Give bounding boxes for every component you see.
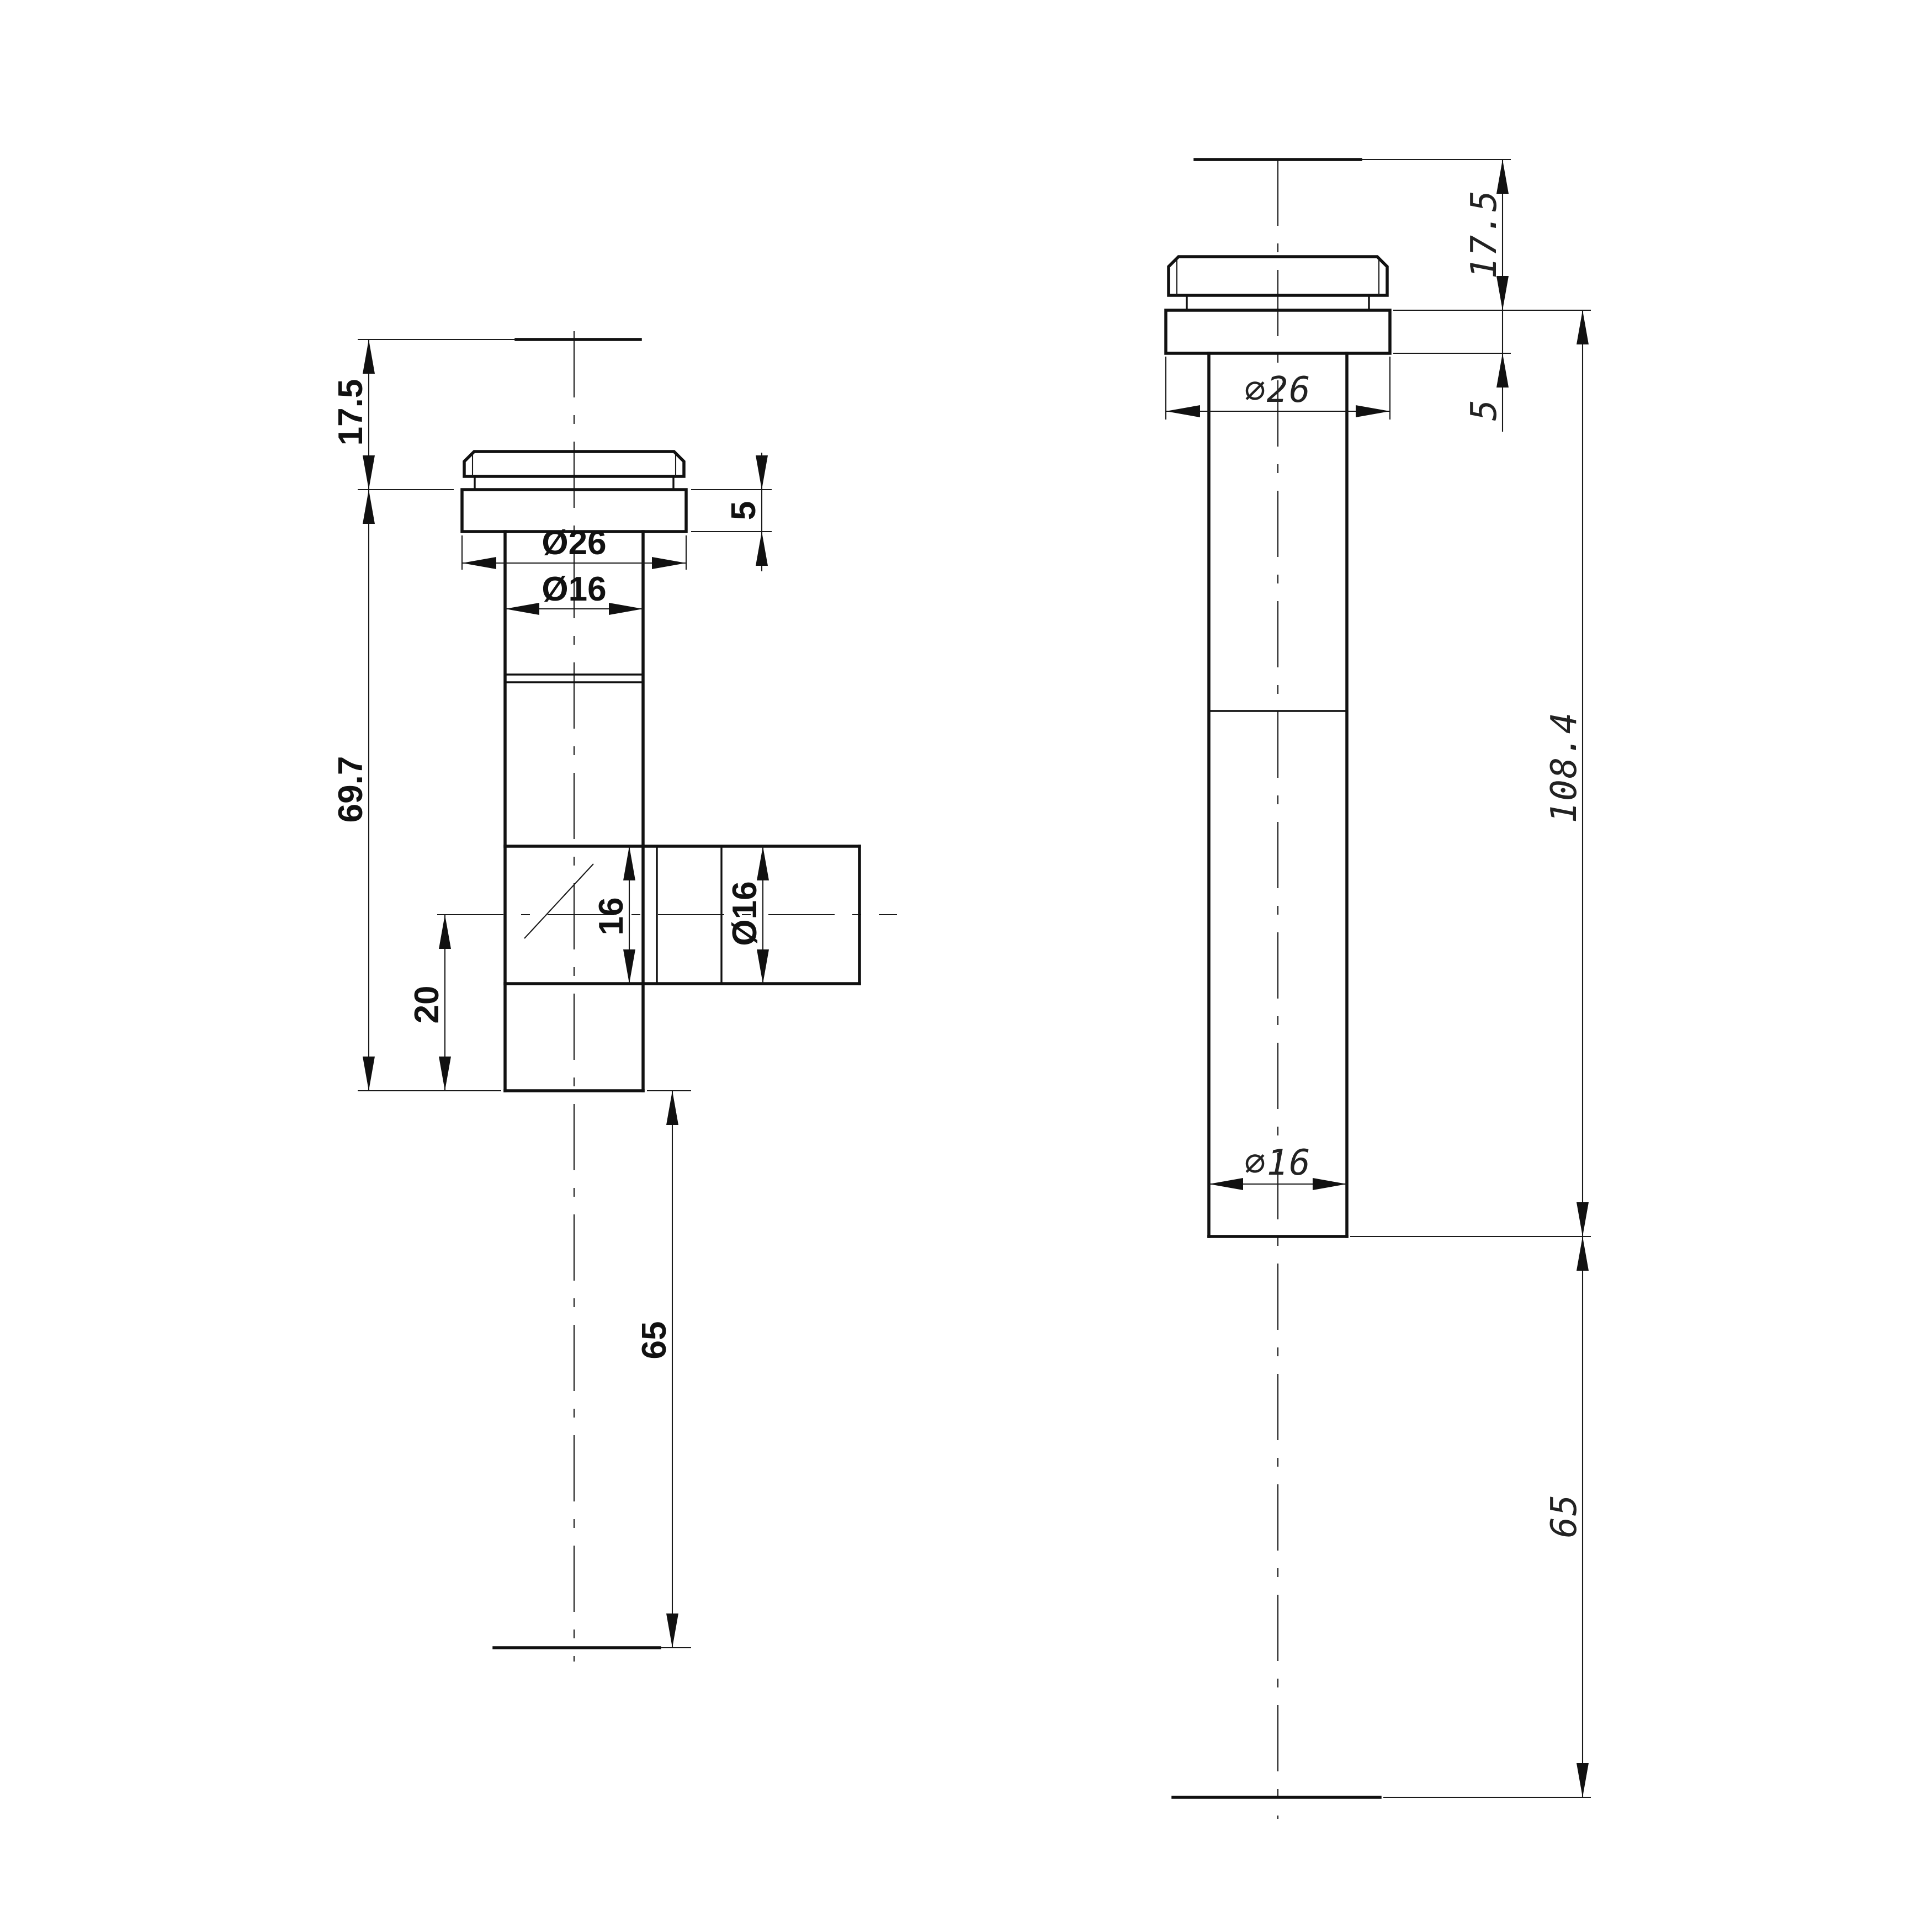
arrowhead [439,1057,451,1091]
arrowhead [757,846,769,880]
arrowhead [1577,1236,1589,1271]
arrowhead [1166,405,1200,417]
arrowhead [1209,1178,1243,1190]
arrowhead [652,557,686,569]
arrowhead [1496,353,1509,388]
left-view-dimension-labels: 17.5 69.7 20 65 5 Ø26 Ø16 16 Ø16 [332,379,764,1360]
left-view-outline [462,339,859,1648]
right-view: 17.5 5 ∅26 108.4 ∅16 65 [1166,160,1591,1819]
arrowhead [363,1057,375,1091]
right-view-dimension-labels: 17.5 5 ∅26 108.4 ∅16 65 [1244,189,1585,1538]
dim-label-dia26: Ø26 [542,524,606,562]
arrowhead [1313,1178,1347,1190]
dim-label-17-5: 17.5 [1464,189,1505,279]
arrowhead [666,1613,678,1648]
arrowhead [756,455,768,490]
dim-label-20: 20 [408,986,446,1024]
dim-label-arm-dia16: Ø16 [726,881,764,946]
right-view-dimension-lines [1166,160,1583,1797]
right-view-extension-lines [1166,160,1591,1797]
dim-label-65: 65 [635,1321,673,1360]
arrowhead [363,455,375,490]
arrowhead [756,532,768,566]
flat-indicator-slash [524,864,593,938]
arrowhead [1356,405,1390,417]
right-view-arrowheads [1166,160,1589,1797]
dim-label-5: 5 [725,501,763,520]
dim-label-dia26: ∅26 [1244,370,1312,411]
dim-label-dia16: Ø16 [542,570,606,608]
dim-label-5: 5 [1464,399,1505,421]
arrowhead [1496,160,1509,194]
dim-label-108-4: 108.4 [1544,712,1585,824]
arrowhead [666,1091,678,1125]
dim-label-69-7: 69.7 [332,756,370,823]
technical-drawing-canvas: 17.5 69.7 20 65 5 Ø26 Ø16 16 Ø16 [0,0,1932,1932]
arrowhead [1577,1202,1589,1236]
arrowhead [1496,276,1509,310]
arrowhead [623,846,635,880]
arrowhead [363,339,375,374]
dim-label-arm-16: 16 [592,898,630,936]
arrowhead [505,603,539,615]
arrowhead [623,949,635,984]
arrowhead [462,557,496,569]
left-view: 17.5 69.7 20 65 5 Ø26 Ø16 16 Ø16 [332,331,897,1662]
arrowhead [609,603,643,615]
dim-label-17-5: 17.5 [332,379,370,446]
arrowhead [1577,1763,1589,1797]
arrowhead [439,915,451,949]
arrowhead [363,490,375,524]
dim-label-dia16: ∅16 [1244,1143,1312,1183]
arrowhead [1577,310,1589,344]
dim-label-65: 65 [1544,1493,1585,1538]
arrowhead [757,949,769,984]
